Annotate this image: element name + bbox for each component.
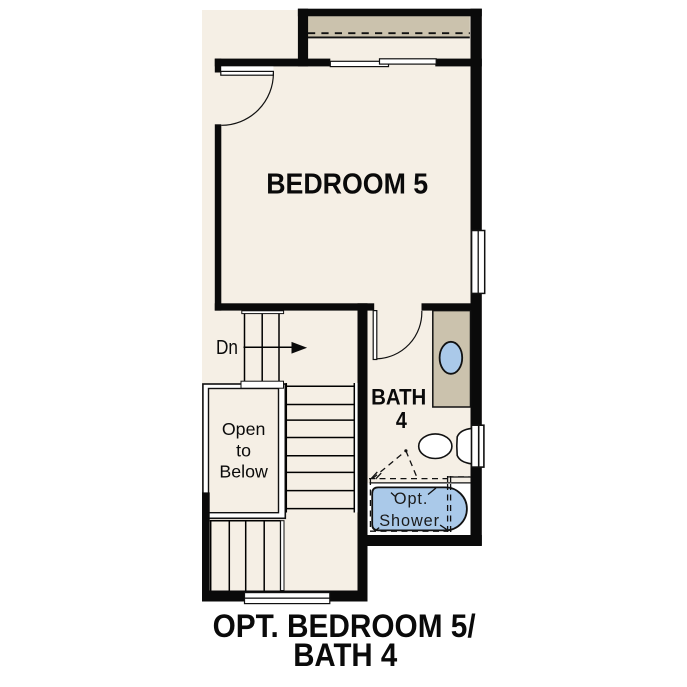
svg-text:Shower: Shower	[379, 512, 440, 530]
svg-text:4: 4	[396, 407, 407, 433]
svg-text:BATH: BATH	[371, 384, 426, 409]
svg-text:Open: Open	[222, 419, 266, 439]
svg-text:BATH 4: BATH 4	[293, 637, 397, 673]
svg-text:BEDROOM 5: BEDROOM 5	[266, 169, 428, 201]
svg-text:Opt.: Opt.	[394, 490, 428, 508]
svg-text:Dn: Dn	[216, 336, 238, 359]
svg-text:Below: Below	[219, 462, 268, 482]
svg-text:to: to	[236, 440, 251, 460]
